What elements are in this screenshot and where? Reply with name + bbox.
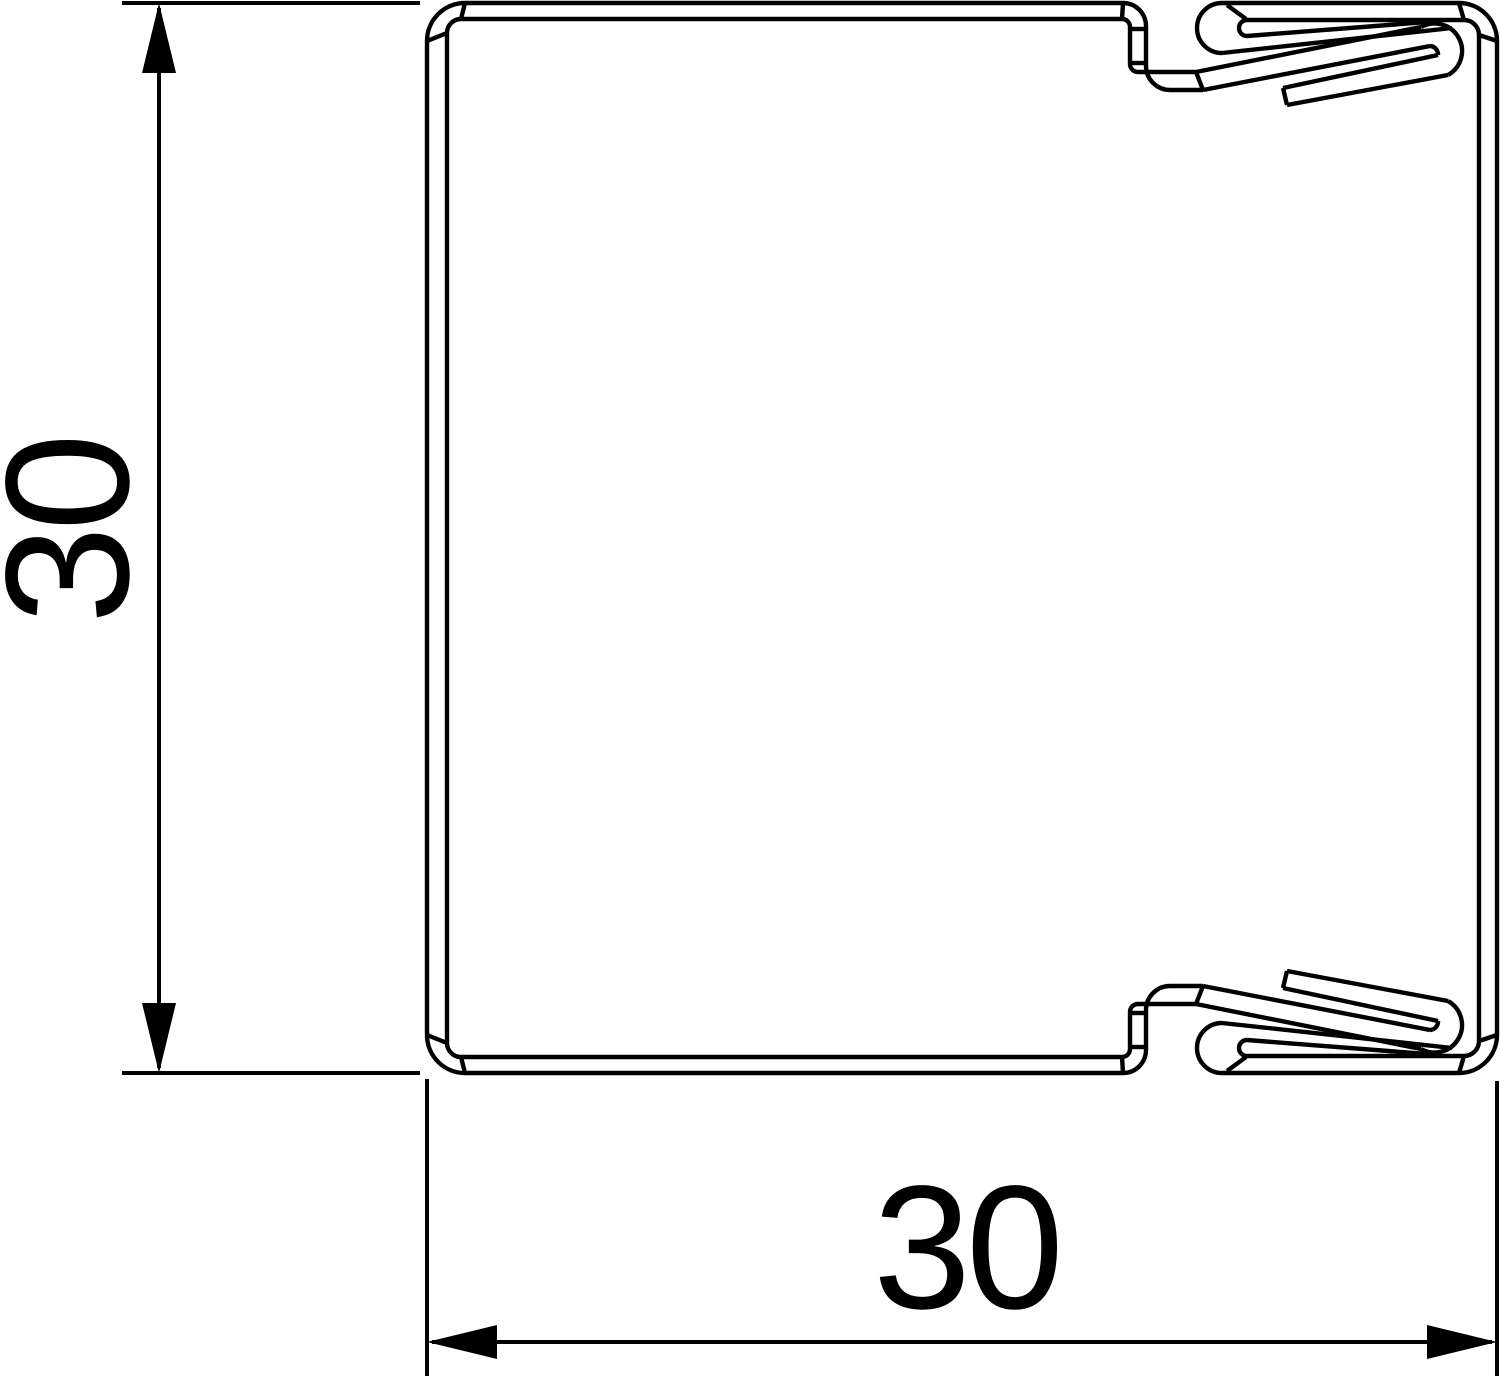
arrowhead-left-icon [427,1325,497,1359]
top-wall [461,3,1123,19]
height-dimension-label: 30 [0,438,166,624]
lid-latch-detail [1122,3,1464,105]
profile-top-half [427,3,1497,105]
width-dimension-label: 30 [873,1150,1059,1346]
height-dimension: 30 [0,3,420,1073]
profile-bottom-half [427,971,1497,1073]
technical-drawing-canvas: 30 30 [0,0,1500,1378]
top-left-corner [427,3,465,41]
arrowhead-down-icon [142,1003,176,1073]
width-dimension: 30 [427,1079,1497,1376]
profile-side-walls [427,33,1497,1043]
arrowhead-right-icon [1427,1325,1497,1359]
arrowhead-up-icon [142,3,176,73]
profile-outline [427,3,1497,1073]
profile-dimension-drawing: 30 30 [0,0,1500,1378]
dimension-annotations: 30 30 [0,3,1497,1376]
